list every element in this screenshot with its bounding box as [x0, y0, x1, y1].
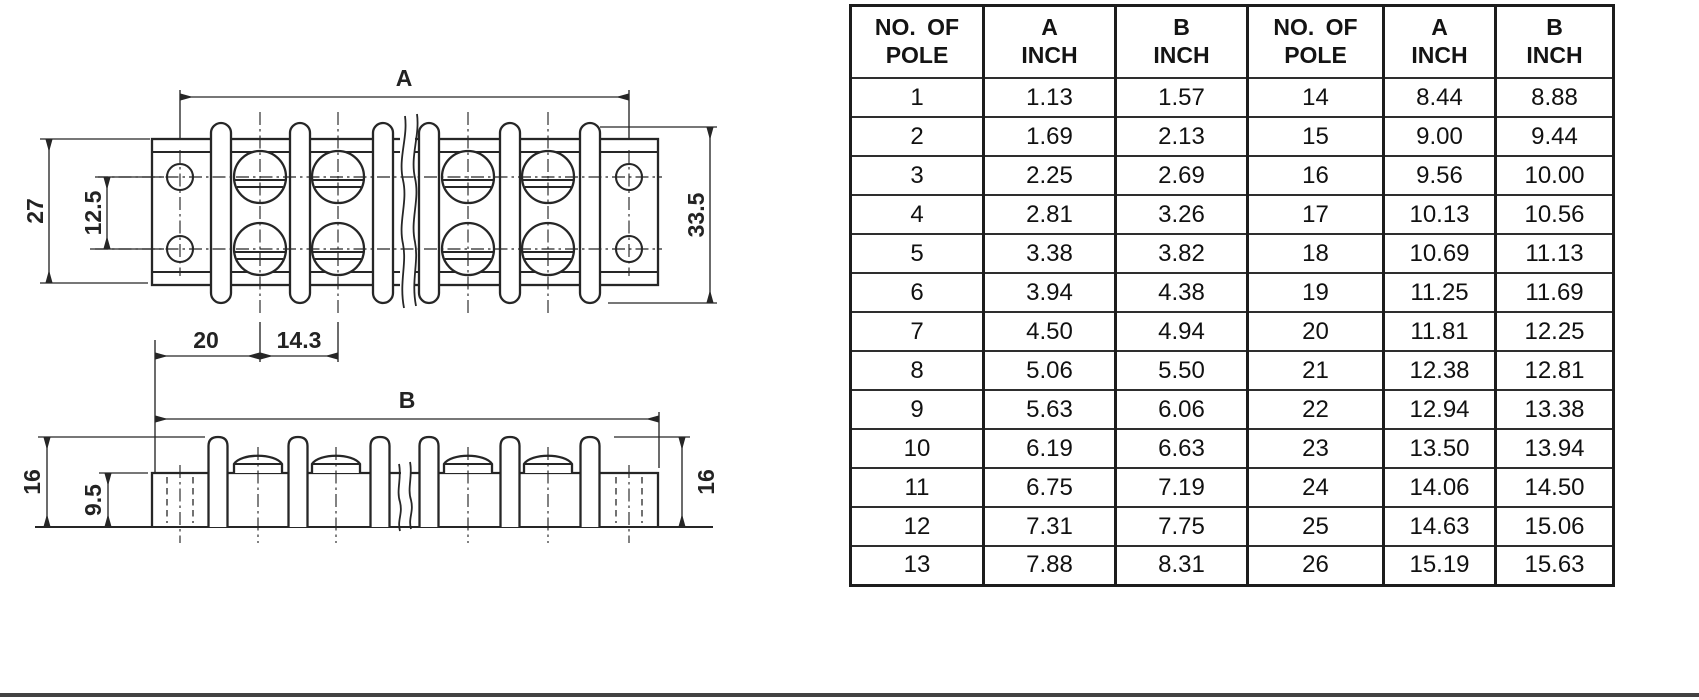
table-cell: 10.56	[1496, 195, 1614, 234]
table-cell: 10.69	[1384, 234, 1496, 273]
dim-20-label: 20	[193, 327, 219, 353]
table-cell: 6.75	[984, 468, 1116, 507]
bottom-bar	[0, 693, 1699, 697]
table-cell: 2	[851, 117, 984, 156]
table-row: 137.888.312615.1915.63	[851, 546, 1614, 585]
table-cell: 9.56	[1384, 156, 1496, 195]
dim-16r-label: 16	[693, 469, 719, 495]
table-cell: 1.69	[984, 117, 1116, 156]
table-body: 11.131.57148.448.8821.692.13159.009.4432…	[851, 78, 1614, 585]
table-cell: 1.13	[984, 78, 1116, 117]
column-header: NO. OFPOLE	[851, 6, 984, 79]
table-row: 32.252.69169.5610.00	[851, 156, 1614, 195]
table-cell: 3.26	[1116, 195, 1248, 234]
dim-14_3-label: 14.3	[277, 327, 322, 353]
table-row: 127.317.752514.6315.06	[851, 507, 1614, 546]
table-row: 106.196.632313.5013.94	[851, 429, 1614, 468]
table-cell: 24	[1248, 468, 1384, 507]
table-cell: 5.63	[984, 390, 1116, 429]
table-cell: 11.25	[1384, 273, 1496, 312]
table-cell: 11.69	[1496, 273, 1614, 312]
dim-12_5-label: 12.5	[80, 190, 106, 235]
table-cell: 9	[851, 390, 984, 429]
dim-33_5-label: 33.5	[683, 192, 709, 237]
table-row: 63.944.381911.2511.69	[851, 273, 1614, 312]
table-cell: 6.06	[1116, 390, 1248, 429]
table-cell: 14.63	[1384, 507, 1496, 546]
table-cell: 23	[1248, 429, 1384, 468]
table-cell: 14	[1248, 78, 1384, 117]
dimension-table: NO. OFPOLEAINCHBINCHNO. OFPOLEAINCHBINCH…	[849, 4, 1615, 587]
side-break-mask	[401, 466, 410, 524]
table-cell: 3.94	[984, 273, 1116, 312]
table-cell: 20	[1248, 312, 1384, 351]
page: A 27 12.5 33.5 20 14.3 B 16 9.5 16 NO. O…	[0, 0, 1699, 700]
table-cell: 1	[851, 78, 984, 117]
table-cell: 15.19	[1384, 546, 1496, 585]
table-cell: 5	[851, 234, 984, 273]
table-cell: 2.69	[1116, 156, 1248, 195]
table-cell: 13	[851, 546, 984, 585]
table-cell: 10.13	[1384, 195, 1496, 234]
side-view	[35, 437, 713, 543]
table-cell: 8.88	[1496, 78, 1614, 117]
column-header: BINCH	[1116, 6, 1248, 79]
table-row: 11.131.57148.448.88	[851, 78, 1614, 117]
table-cell: 18	[1248, 234, 1384, 273]
table-cell: 13.38	[1496, 390, 1614, 429]
table-cell: 6.63	[1116, 429, 1248, 468]
pole-dimension-table: NO. OFPOLEAINCHBINCHNO. OFPOLEAINCHBINCH…	[849, 4, 1615, 587]
table-cell: 10.00	[1496, 156, 1614, 195]
table-cell: 7.19	[1116, 468, 1248, 507]
side-break-right	[410, 462, 412, 529]
table-cell: 2.13	[1116, 117, 1248, 156]
table-cell: 7	[851, 312, 984, 351]
table-cell: 7.88	[984, 546, 1116, 585]
table-cell: 26	[1248, 546, 1384, 585]
table-cell: 6	[851, 273, 984, 312]
table-cell: 12.81	[1496, 351, 1614, 390]
table-cell: 3	[851, 156, 984, 195]
dim-16l-label: 16	[19, 469, 45, 495]
dimension-labels: A 27 12.5 33.5 20 14.3 B 16 9.5 16	[19, 65, 719, 516]
table-cell: 2.25	[984, 156, 1116, 195]
column-header: NO. OFPOLE	[1248, 6, 1384, 79]
table-cell: 4.38	[1116, 273, 1248, 312]
dim-9_5-label: 9.5	[80, 484, 106, 516]
table-cell: 22	[1248, 390, 1384, 429]
table-cell: 9.44	[1496, 117, 1614, 156]
table-cell: 4.94	[1116, 312, 1248, 351]
table-cell: 7.75	[1116, 507, 1248, 546]
table-row: 95.636.062212.9413.38	[851, 390, 1614, 429]
column-header: BINCH	[1496, 6, 1614, 79]
table-cell: 8.44	[1384, 78, 1496, 117]
table-cell: 3.82	[1116, 234, 1248, 273]
table-cell: 14.50	[1496, 468, 1614, 507]
table-cell: 11.81	[1384, 312, 1496, 351]
table-header: NO. OFPOLEAINCHBINCHNO. OFPOLEAINCHBINCH	[851, 6, 1614, 79]
table-cell: 14.06	[1384, 468, 1496, 507]
table-cell: 12.25	[1496, 312, 1614, 351]
table-row: 53.383.821810.6911.13	[851, 234, 1614, 273]
table-row: 42.813.261710.1310.56	[851, 195, 1614, 234]
table-row: 116.757.192414.0614.50	[851, 468, 1614, 507]
table-cell: 15	[1248, 117, 1384, 156]
table-cell: 10	[851, 429, 984, 468]
dim-27-label: 27	[22, 198, 48, 224]
table-cell: 19	[1248, 273, 1384, 312]
table-cell: 4.50	[984, 312, 1116, 351]
table-cell: 3.38	[984, 234, 1116, 273]
table-cell: 16	[1248, 156, 1384, 195]
table-cell: 12	[851, 507, 984, 546]
table-cell: 15.06	[1496, 507, 1614, 546]
top-view	[95, 112, 662, 315]
table-row: 74.504.942011.8112.25	[851, 312, 1614, 351]
column-header: AINCH	[1384, 6, 1496, 79]
table-cell: 12.38	[1384, 351, 1496, 390]
table-cell: 15.63	[1496, 546, 1614, 585]
table-cell: 12.94	[1384, 390, 1496, 429]
table-cell: 2.81	[984, 195, 1116, 234]
table-cell: 21	[1248, 351, 1384, 390]
dim-b-label: B	[399, 387, 416, 413]
table-cell: 8.31	[1116, 546, 1248, 585]
terminal-block-technical-drawing: A 27 12.5 33.5 20 14.3 B 16 9.5 16	[0, 0, 780, 660]
table-cell: 4	[851, 195, 984, 234]
table-cell: 25	[1248, 507, 1384, 546]
table-row: 85.065.502112.3812.81	[851, 351, 1614, 390]
table-cell: 6.19	[984, 429, 1116, 468]
table-cell: 5.06	[984, 351, 1116, 390]
table-cell: 11	[851, 468, 984, 507]
table-cell: 5.50	[1116, 351, 1248, 390]
column-header: AINCH	[984, 6, 1116, 79]
table-cell: 13.94	[1496, 429, 1614, 468]
dim-a-label: A	[396, 65, 413, 91]
table-cell: 13.50	[1384, 429, 1496, 468]
table-row: 21.692.13159.009.44	[851, 117, 1614, 156]
table-cell: 17	[1248, 195, 1384, 234]
table-cell: 9.00	[1384, 117, 1496, 156]
table-cell: 8	[851, 351, 984, 390]
table-cell: 1.57	[1116, 78, 1248, 117]
table-cell: 7.31	[984, 507, 1116, 546]
side-break-left	[399, 464, 401, 531]
table-cell: 11.13	[1496, 234, 1614, 273]
